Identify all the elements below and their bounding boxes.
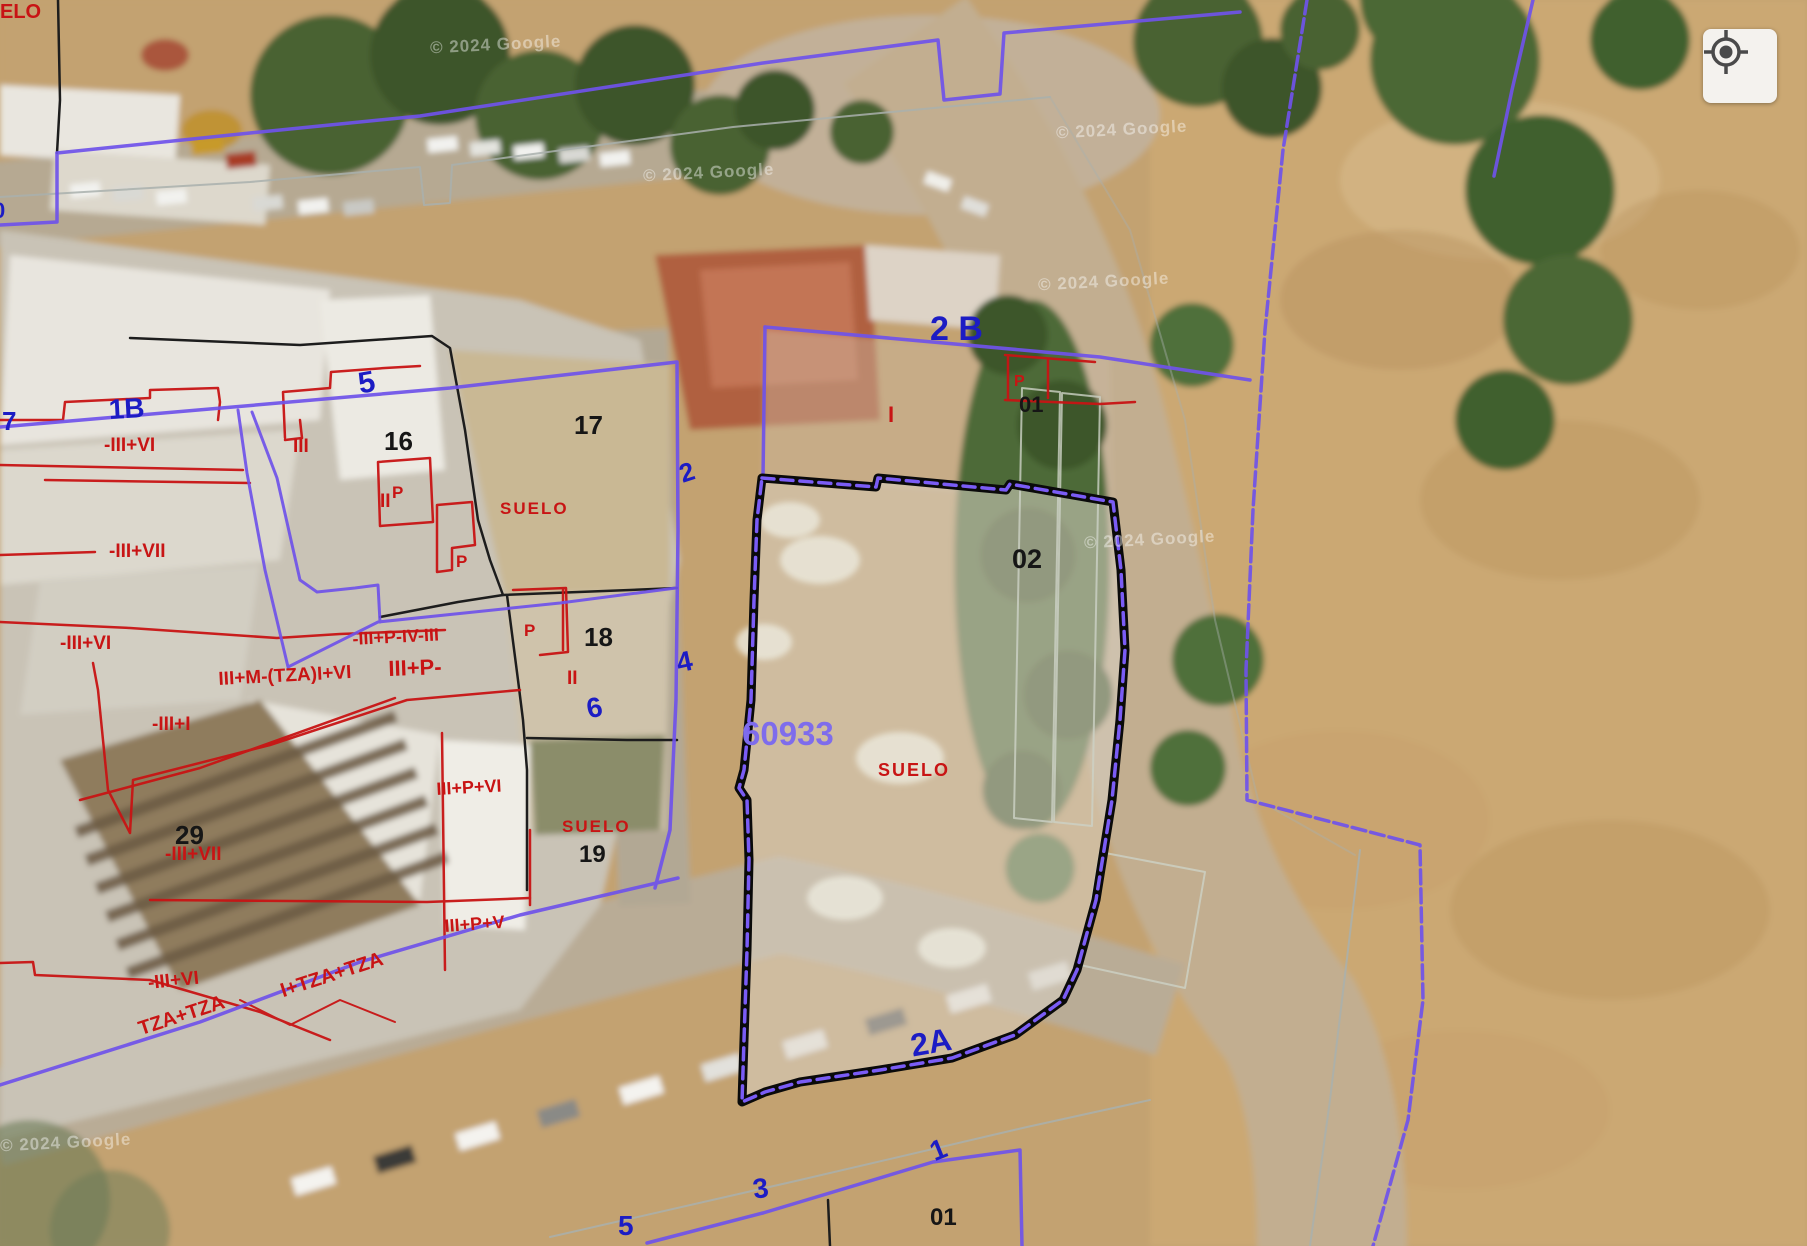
land-use-19: SUELO bbox=[562, 818, 631, 835]
label-suelo-clipped: ELO bbox=[0, 2, 41, 22]
parcel-19: 19 bbox=[579, 843, 606, 867]
block-code: 60933 bbox=[742, 717, 834, 750]
storeys: -III+VII bbox=[165, 845, 222, 864]
street-number-2a: 2A bbox=[908, 1023, 954, 1062]
parcel-16: 16 bbox=[384, 428, 413, 454]
geolocate-button[interactable] bbox=[1703, 29, 1777, 103]
storeys: III+P+V bbox=[444, 913, 505, 935]
cadastral-map-viewport[interactable]: ELO071B52 B2462A135609331617181929010201… bbox=[0, 0, 1807, 1246]
storeys: III bbox=[293, 437, 309, 456]
land-use-17: SUELO bbox=[500, 500, 569, 517]
storeys: P bbox=[392, 484, 403, 501]
parcel-18: 18 bbox=[584, 624, 613, 650]
storeys: P bbox=[1014, 374, 1025, 390]
land-use-selected: SUELO bbox=[878, 761, 950, 779]
map-canvas bbox=[0, 0, 1807, 1246]
street-number-1b: 1B bbox=[108, 394, 145, 424]
storeys: -III+I bbox=[152, 715, 191, 734]
parcel-17: 17 bbox=[574, 412, 603, 438]
parcel-01: 01 bbox=[1019, 394, 1043, 416]
storeys: P bbox=[524, 622, 535, 639]
street-number-0: 0 bbox=[0, 200, 5, 222]
storeys: II bbox=[567, 669, 578, 688]
parcel-01b: 01 bbox=[930, 1206, 957, 1230]
storeys: -III+VI bbox=[60, 634, 111, 653]
storeys: -III+VII bbox=[109, 542, 166, 561]
parcel-02: 02 bbox=[1012, 546, 1042, 573]
street-number-7: 7 bbox=[2, 408, 16, 434]
storeys: I bbox=[888, 404, 894, 426]
storeys: -III+P-IV-III bbox=[352, 625, 439, 648]
storeys: -III+VI bbox=[104, 436, 155, 455]
storeys: III+P- bbox=[388, 656, 442, 680]
street-number-2b: 2 B bbox=[930, 312, 983, 346]
storeys: P bbox=[456, 553, 467, 570]
storeys: III+P+VI bbox=[436, 777, 502, 798]
storeys: II bbox=[380, 492, 391, 511]
street-number-5b: 5 bbox=[618, 1212, 634, 1240]
storeys: -III+VI bbox=[147, 969, 200, 993]
